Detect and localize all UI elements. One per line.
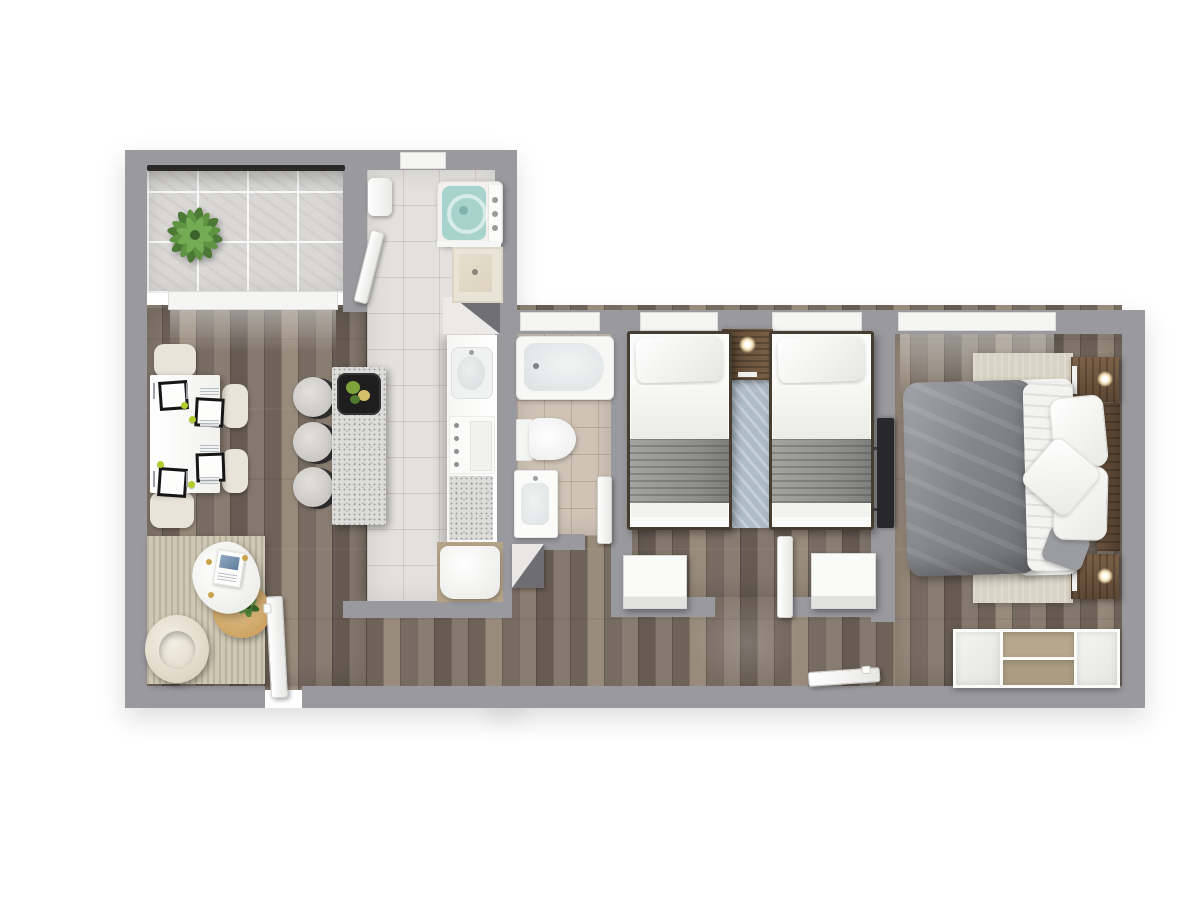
wall-tv xyxy=(877,418,894,528)
dining-chair-bottom xyxy=(150,492,194,528)
wall-kitchen-bottom xyxy=(343,601,512,618)
bed-blanket xyxy=(772,439,871,503)
window-balcony-living xyxy=(168,291,338,310)
tv-bracket xyxy=(872,447,877,450)
door-handle xyxy=(263,603,272,613)
knob xyxy=(454,436,459,441)
panel-dial xyxy=(492,225,498,231)
napkin xyxy=(189,416,196,423)
menu-card xyxy=(200,477,219,484)
food-dark-green xyxy=(350,395,360,404)
toilet-bowl xyxy=(529,418,576,460)
drain xyxy=(472,269,478,275)
dresser-shelf-bottom xyxy=(1003,660,1074,685)
dining-chair-right-1 xyxy=(222,384,248,428)
panel-dial xyxy=(492,211,498,217)
serving-tray xyxy=(337,373,381,415)
magazine-photo xyxy=(219,555,240,571)
cabinet-open-door xyxy=(512,544,544,588)
sink-basin xyxy=(457,356,485,390)
bar-stool xyxy=(293,377,333,417)
washing-machine xyxy=(437,181,503,246)
twin-bedroom-door xyxy=(777,536,793,618)
wall-right xyxy=(1122,310,1145,708)
dresser-shelves-middle xyxy=(1003,632,1074,685)
bed-pillow xyxy=(777,336,865,384)
fridge xyxy=(440,546,500,599)
window-twin-left xyxy=(640,312,718,331)
kitchen-island xyxy=(332,367,386,525)
armchair-seat xyxy=(154,626,200,673)
dresser-compartment-right xyxy=(1077,632,1117,685)
tv-bracket xyxy=(872,508,877,511)
bed-blanket xyxy=(630,439,729,503)
window-laundry xyxy=(400,152,446,169)
bed-fold xyxy=(631,503,728,517)
door-handle xyxy=(861,666,871,675)
bathtub xyxy=(516,336,614,400)
sink-vanity xyxy=(514,470,558,538)
knob xyxy=(454,423,459,428)
faucet xyxy=(533,476,538,481)
menu-card xyxy=(200,388,219,395)
vanity-basin xyxy=(521,483,549,525)
window-twin-right xyxy=(772,312,862,331)
bar-stool xyxy=(293,467,333,507)
cutlery xyxy=(186,471,188,487)
knob xyxy=(454,449,459,454)
window-master xyxy=(898,312,1056,331)
magazine xyxy=(212,549,245,588)
double-bed xyxy=(900,369,1123,585)
table-decor xyxy=(242,555,248,561)
water-heater xyxy=(368,178,392,216)
gray-duvet xyxy=(902,379,1037,576)
oven-face xyxy=(470,421,492,471)
table-decor xyxy=(206,559,212,565)
bed-fold xyxy=(773,503,870,517)
menu-card xyxy=(200,445,219,452)
plant-icon xyxy=(158,192,232,278)
table-decor xyxy=(208,592,214,598)
utility-sink xyxy=(452,247,503,303)
menu-card xyxy=(200,420,219,427)
napkin xyxy=(181,402,188,409)
storage-chest-right xyxy=(811,553,876,609)
dining-table xyxy=(150,375,220,493)
napkin xyxy=(157,461,164,468)
wall-bottom xyxy=(302,686,1145,708)
bed-sheet xyxy=(773,385,870,439)
cutlery xyxy=(153,383,155,399)
dresser-compartment-left xyxy=(956,632,1000,685)
dresser-shelf-top xyxy=(1003,632,1074,657)
placemat xyxy=(157,467,188,498)
wall-bottom-left xyxy=(125,686,265,708)
cutlery xyxy=(186,383,188,399)
nightstand-tray xyxy=(738,372,757,377)
granite-worktop xyxy=(449,476,493,540)
magazine-text xyxy=(217,570,237,582)
sideboard-dresser xyxy=(953,629,1120,688)
faucet xyxy=(469,350,474,355)
window-bathroom xyxy=(520,312,600,331)
washer-drum-center xyxy=(459,206,468,215)
floor-plan xyxy=(0,0,1200,900)
washer-drum-ring xyxy=(447,194,487,234)
bed-pillow xyxy=(635,336,723,384)
potted-plant xyxy=(158,192,232,278)
wall-left xyxy=(125,150,147,708)
storage-chest-left xyxy=(623,555,687,609)
washer-panel xyxy=(488,185,501,241)
bed-sheet xyxy=(631,385,728,439)
single-bed-right xyxy=(769,331,874,530)
dining-chair-right-2 xyxy=(222,449,248,493)
toilet xyxy=(516,416,578,462)
bar-stool xyxy=(293,422,333,462)
cutlery xyxy=(153,471,155,487)
single-bed-left xyxy=(627,331,732,530)
tub-drain xyxy=(533,363,539,369)
kitchen-sink xyxy=(451,347,493,399)
balcony-glass-railing xyxy=(147,165,345,171)
knob xyxy=(454,462,459,467)
napkin xyxy=(188,481,195,488)
panel-dial xyxy=(492,197,498,203)
armchair xyxy=(145,615,209,683)
hall-cabinet xyxy=(512,544,544,588)
dining-chair-top xyxy=(154,344,196,377)
pendant-lamp xyxy=(739,336,756,353)
cooktop xyxy=(449,416,495,474)
bathroom-door xyxy=(597,476,612,544)
